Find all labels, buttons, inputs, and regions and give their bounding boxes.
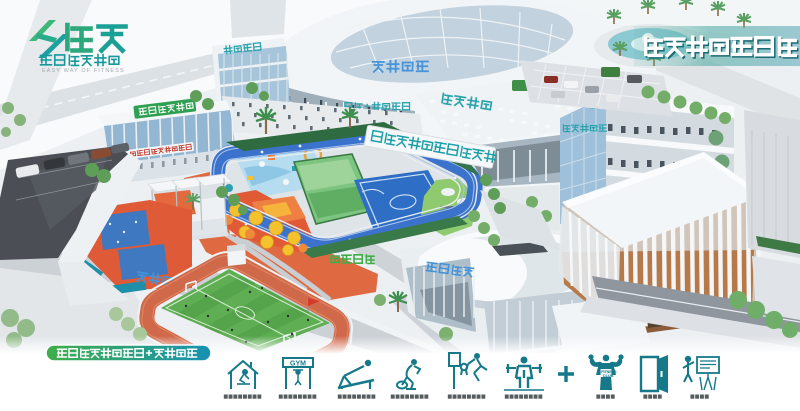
svg-text:GYM: GYM [290, 361, 306, 368]
svg-text:CLUB: CLUB [603, 373, 614, 378]
svg-text:EASY WAY OF FITNESS: EASY WAY OF FITNESS [42, 68, 125, 74]
